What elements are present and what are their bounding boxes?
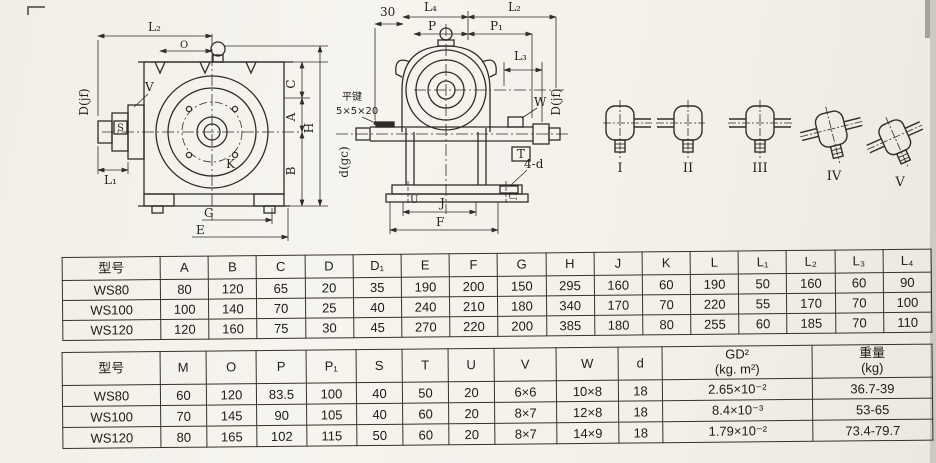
dim-label-30: 30 <box>380 5 395 19</box>
value-cell: 190 <box>401 277 449 297</box>
value-cell: 55 <box>739 294 787 314</box>
column-header: F <box>449 253 497 276</box>
scan-artifact-mark <box>27 6 45 15</box>
arrangement-label-3: III <box>752 161 767 176</box>
value-cell: 1.79×10⁻² <box>663 420 813 442</box>
value-cell: 83.5 <box>256 383 306 404</box>
value-cell: 295 <box>546 275 594 295</box>
value-cell: 6×6 <box>494 381 556 403</box>
value-cell: 18 <box>619 401 663 422</box>
dimension-table-1: 型号ABCDD₁EFGHJKLL₁L₂L₃L₄ WS80801206520351… <box>62 249 933 341</box>
value-cell: 200 <box>449 276 497 296</box>
value-cell: 35 <box>353 277 401 297</box>
dim-label-b: B <box>284 166 298 175</box>
dim-label-f: F <box>436 215 444 229</box>
value-cell: 8×7 <box>495 423 557 445</box>
column-header: L₄ <box>883 249 931 272</box>
model-cell: WS120 <box>63 320 161 341</box>
value-cell: 100 <box>883 292 931 312</box>
value-cell: 145 <box>207 405 257 426</box>
column-header: L <box>690 251 738 274</box>
shaft-arrangement-diagrams: I II II <box>592 86 934 209</box>
key-note-line2: 5×5×20 <box>336 106 378 117</box>
value-cell: 240 <box>401 297 449 317</box>
dimension-table-2: 型号MOPP₁STUVWdGD² (kg. m²)重量 (kg) WS80601… <box>62 344 934 449</box>
dim-label-p: P <box>428 19 436 33</box>
value-cell: 160 <box>594 275 642 295</box>
value-cell: 20 <box>449 402 495 423</box>
column-header: A <box>160 256 208 279</box>
value-cell: 220 <box>450 316 498 336</box>
value-cell: 80 <box>160 279 208 299</box>
value-cell: 60 <box>835 273 883 293</box>
arrangement-icon-4: IV <box>795 99 871 184</box>
gearbox-side-outline <box>356 28 560 205</box>
value-cell: 80 <box>161 426 207 447</box>
dim-label-l1: L₁ <box>104 173 117 187</box>
dim-label-u-right: U <box>506 192 517 200</box>
value-cell: 120 <box>161 319 209 339</box>
column-header: M <box>160 351 206 384</box>
model-cell: WS80 <box>62 385 160 407</box>
value-cell: 20 <box>449 423 495 444</box>
dim-label-l2-side: L₂ <box>508 0 521 14</box>
value-cell: 185 <box>787 313 835 333</box>
value-cell: 2.65×10⁻² <box>662 378 812 400</box>
value-cell: 8×7 <box>495 402 557 424</box>
catalog-page: L₂ O D(jf) V S L₁ K C A B H G E <box>0 0 936 463</box>
dim-label-u-left: U <box>410 195 418 206</box>
value-cell: 180 <box>594 315 642 335</box>
column-header: C <box>256 255 304 278</box>
column-header: T <box>402 349 448 382</box>
value-cell: 25 <box>305 298 353 318</box>
dim-label-o: O <box>180 40 188 51</box>
value-cell: 100 <box>306 383 356 404</box>
value-cell: 160 <box>787 273 835 293</box>
value-cell: 53-65 <box>813 398 933 420</box>
value-cell: 255 <box>691 314 739 334</box>
value-cell: 40 <box>356 382 402 403</box>
value-cell: 140 <box>209 299 257 319</box>
value-cell: 60 <box>403 403 449 424</box>
value-cell: 170 <box>787 293 835 313</box>
dim-label-j: J <box>438 196 445 210</box>
arrangement-icon-3: III <box>728 100 792 176</box>
gearbox-front-outline <box>98 42 293 213</box>
value-cell: 110 <box>883 312 931 332</box>
column-header: P <box>256 350 306 383</box>
value-cell: 120 <box>209 279 257 299</box>
column-header: P₁ <box>306 350 356 383</box>
value-cell: 90 <box>257 404 307 425</box>
column-header: GD² (kg. m²) <box>662 345 812 379</box>
dim-label-e: E <box>196 223 205 237</box>
value-cell: 36.7-39 <box>812 377 932 399</box>
value-cell: 170 <box>594 295 642 315</box>
dim-label-l4: L₄ <box>424 0 437 14</box>
model-cell: WS100 <box>63 300 161 321</box>
dim-label-a: A <box>284 112 298 122</box>
dim-label-c: C <box>284 79 298 88</box>
value-cell: 14×9 <box>557 422 619 444</box>
value-cell: 220 <box>691 294 739 314</box>
value-cell: 190 <box>690 274 738 294</box>
value-cell: 12×8 <box>557 401 619 423</box>
column-header: K <box>642 251 690 274</box>
value-cell: 18 <box>618 380 662 401</box>
column-header: H <box>546 252 594 275</box>
value-cell: 50 <box>739 274 787 294</box>
value-cell: 20 <box>305 278 353 298</box>
value-cell: 45 <box>353 317 401 337</box>
value-cell: 75 <box>257 318 305 338</box>
value-cell: 70 <box>835 313 883 333</box>
value-cell: 180 <box>498 296 546 316</box>
value-cell: 200 <box>498 316 546 336</box>
value-cell: 105 <box>307 404 357 425</box>
dim-label-djf-side: D(jf) <box>549 88 563 115</box>
dim-label-w: W <box>534 95 547 109</box>
arrangement-label-4: IV <box>827 169 842 184</box>
value-cell: 50 <box>357 424 403 445</box>
value-cell: 70 <box>642 294 690 314</box>
value-cell: 60 <box>642 274 690 294</box>
value-cell: 100 <box>161 299 209 319</box>
column-header: d <box>618 347 662 380</box>
value-cell: 160 <box>209 319 257 339</box>
value-cell: 210 <box>450 296 498 316</box>
arrangement-label-5: V <box>894 175 905 190</box>
model-cell: WS80 <box>62 280 160 301</box>
dim-label-l2-front: L₂ <box>148 20 161 34</box>
column-header: E <box>401 254 449 277</box>
value-cell: 50 <box>402 382 448 403</box>
arrangement-label-2: II <box>683 161 693 176</box>
value-cell: 80 <box>643 314 691 334</box>
column-header: O <box>206 351 256 384</box>
value-cell: 90 <box>883 272 931 292</box>
column-header: G <box>497 253 545 276</box>
column-header: D <box>305 255 353 278</box>
column-header: L₂ <box>787 250 835 273</box>
value-cell: 40 <box>353 297 401 317</box>
dim-label-v: V <box>144 80 154 94</box>
value-cell: 10×8 <box>556 380 618 402</box>
arrangement-icon-1: I <box>603 100 652 176</box>
value-cell: 150 <box>498 276 546 296</box>
dim-label-dgc: d(gc) <box>337 146 351 177</box>
value-cell: 115 <box>307 425 357 446</box>
column-header: B <box>208 256 256 279</box>
model-cell: WS100 <box>63 406 161 428</box>
dim-label-h: H <box>302 123 316 133</box>
side-view-drawing: 30 L₄ L₂ P P₁ L₃ 平键 5×5×20 d(gc) W D(jf)… <box>318 0 580 257</box>
value-cell: 70 <box>161 405 207 426</box>
value-cell: 102 <box>257 425 307 446</box>
value-cell: 340 <box>546 295 594 315</box>
value-cell: 120 <box>206 384 256 405</box>
dim-label-djf-front: D(jf) <box>77 88 91 115</box>
value-cell: 60 <box>160 384 206 405</box>
value-cell: 18 <box>619 422 663 443</box>
dim-label-k: K <box>226 157 236 171</box>
front-view-drawing: L₂ O D(jf) V S L₁ K C A B H G E <box>52 6 334 259</box>
column-header: J <box>594 252 642 275</box>
value-cell: 8.4×10⁻³ <box>663 399 813 421</box>
value-cell: 30 <box>305 318 353 338</box>
value-cell: 385 <box>546 315 594 335</box>
column-header: D₁ <box>353 254 401 277</box>
value-cell: 73.4-79.7 <box>813 419 933 441</box>
side-dimension-lines <box>336 11 568 234</box>
column-header: L₃ <box>835 250 883 273</box>
value-cell: 60 <box>403 424 449 445</box>
value-cell: 70 <box>257 298 305 318</box>
value-cell: 70 <box>835 293 883 313</box>
column-header: V <box>494 348 556 382</box>
dim-label-s: S <box>117 123 124 134</box>
value-cell: 60 <box>739 314 787 334</box>
column-header: 重量 (kg) <box>812 344 932 378</box>
column-header: 型号 <box>62 352 160 386</box>
column-header: U <box>448 348 494 381</box>
column-header: L₁ <box>738 251 786 274</box>
value-cell: 165 <box>207 426 257 447</box>
value-cell: 270 <box>402 317 450 337</box>
arrangement-icon-5: V <box>858 105 934 190</box>
value-cell: 20 <box>448 381 494 402</box>
column-header: W <box>556 347 618 381</box>
column-header: 型号 <box>62 257 160 281</box>
arrangement-icon-2: II <box>656 100 705 176</box>
value-cell: 40 <box>357 403 403 424</box>
model-cell: WS120 <box>63 427 161 449</box>
dim-label-g: G <box>204 206 214 220</box>
arrangement-label-1: I <box>617 161 622 176</box>
key-note-line1: 平键 <box>342 90 362 103</box>
column-header: S <box>356 349 402 382</box>
dim-label-4d: 4-d <box>524 157 544 171</box>
value-cell: 65 <box>257 278 305 298</box>
dim-label-l3: L₃ <box>514 49 527 63</box>
dim-label-p1: P₁ <box>490 19 503 33</box>
